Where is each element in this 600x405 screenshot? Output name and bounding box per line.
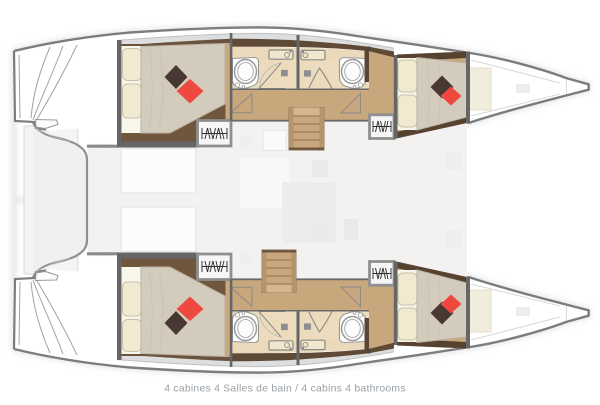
svg-text:4 cabines 4 Salles de bain / 4: 4 cabines 4 Salles de bain / 4 cabins 4 … bbox=[164, 384, 406, 395]
